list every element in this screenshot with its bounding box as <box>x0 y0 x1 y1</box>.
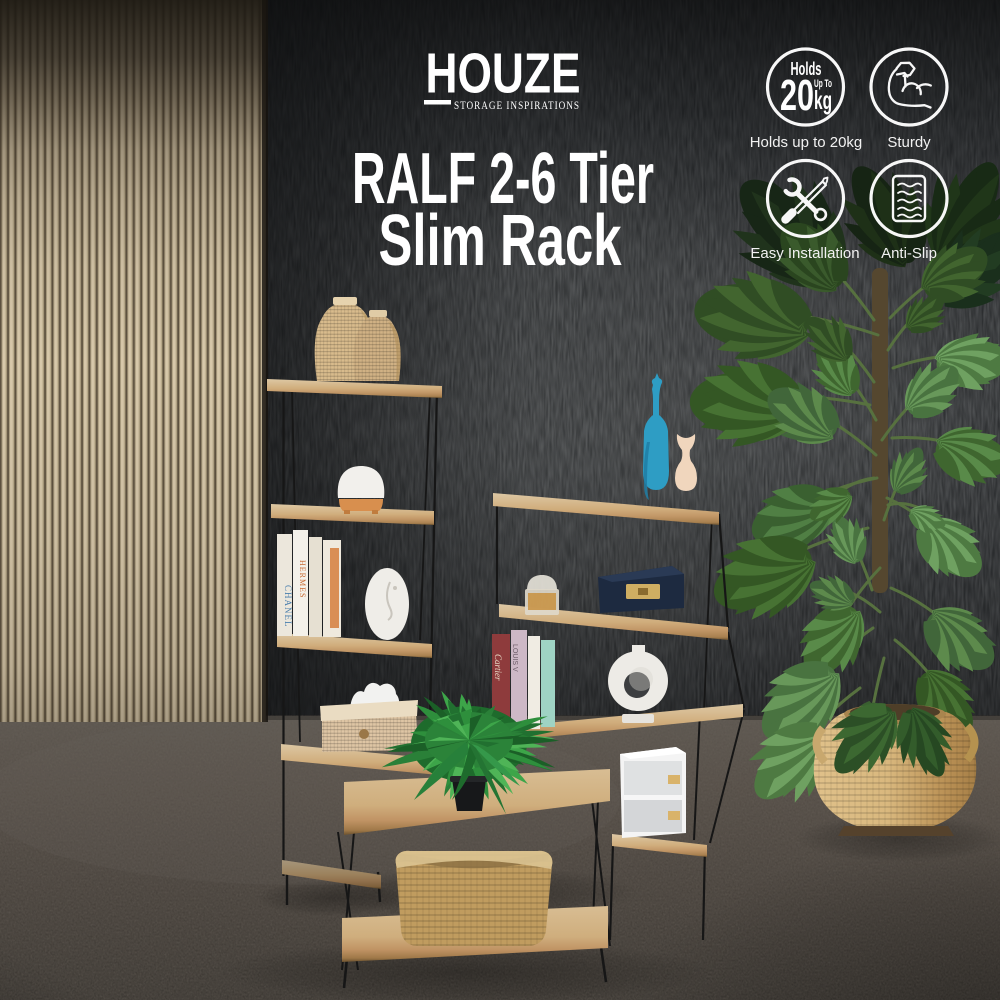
svg-text:Cartier: Cartier <box>493 654 503 681</box>
svg-text:CHANEL: CHANEL <box>283 585 293 628</box>
svg-text:Holds up to 20kg: Holds up to 20kg <box>750 134 863 151</box>
svg-text:HOUZE: HOUZE <box>426 42 581 106</box>
svg-text:Sturdy: Sturdy <box>887 134 931 151</box>
svg-text:STORAGE INSPIRATIONS: STORAGE INSPIRATIONS <box>454 100 580 112</box>
svg-text:Slim Rack: Slim Rack <box>379 201 623 281</box>
svg-text:Easy Installation: Easy Installation <box>750 245 859 262</box>
svg-text:Anti-Slip: Anti-Slip <box>881 245 937 262</box>
svg-text:20: 20 <box>780 71 814 120</box>
svg-text:HERMES: HERMES <box>298 560 307 598</box>
svg-text:kg: kg <box>814 85 832 115</box>
svg-text:LOUIS V: LOUIS V <box>511 644 518 672</box>
